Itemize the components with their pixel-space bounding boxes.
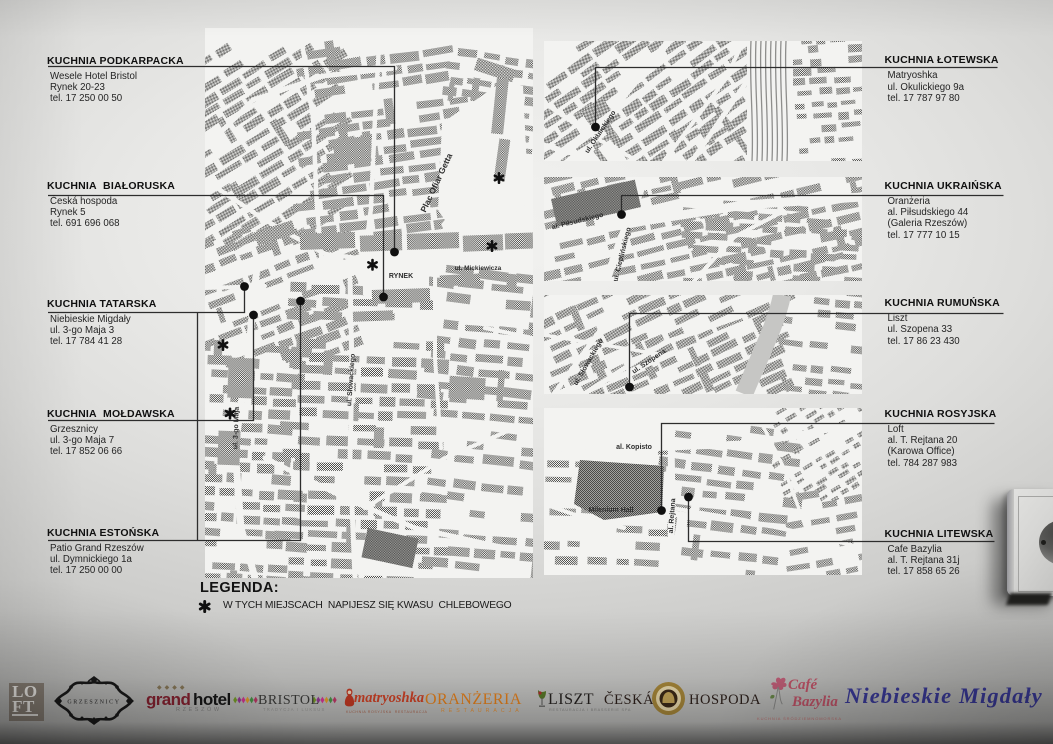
svg-text:GRZESZNICY: GRZESZNICY (67, 700, 120, 706)
